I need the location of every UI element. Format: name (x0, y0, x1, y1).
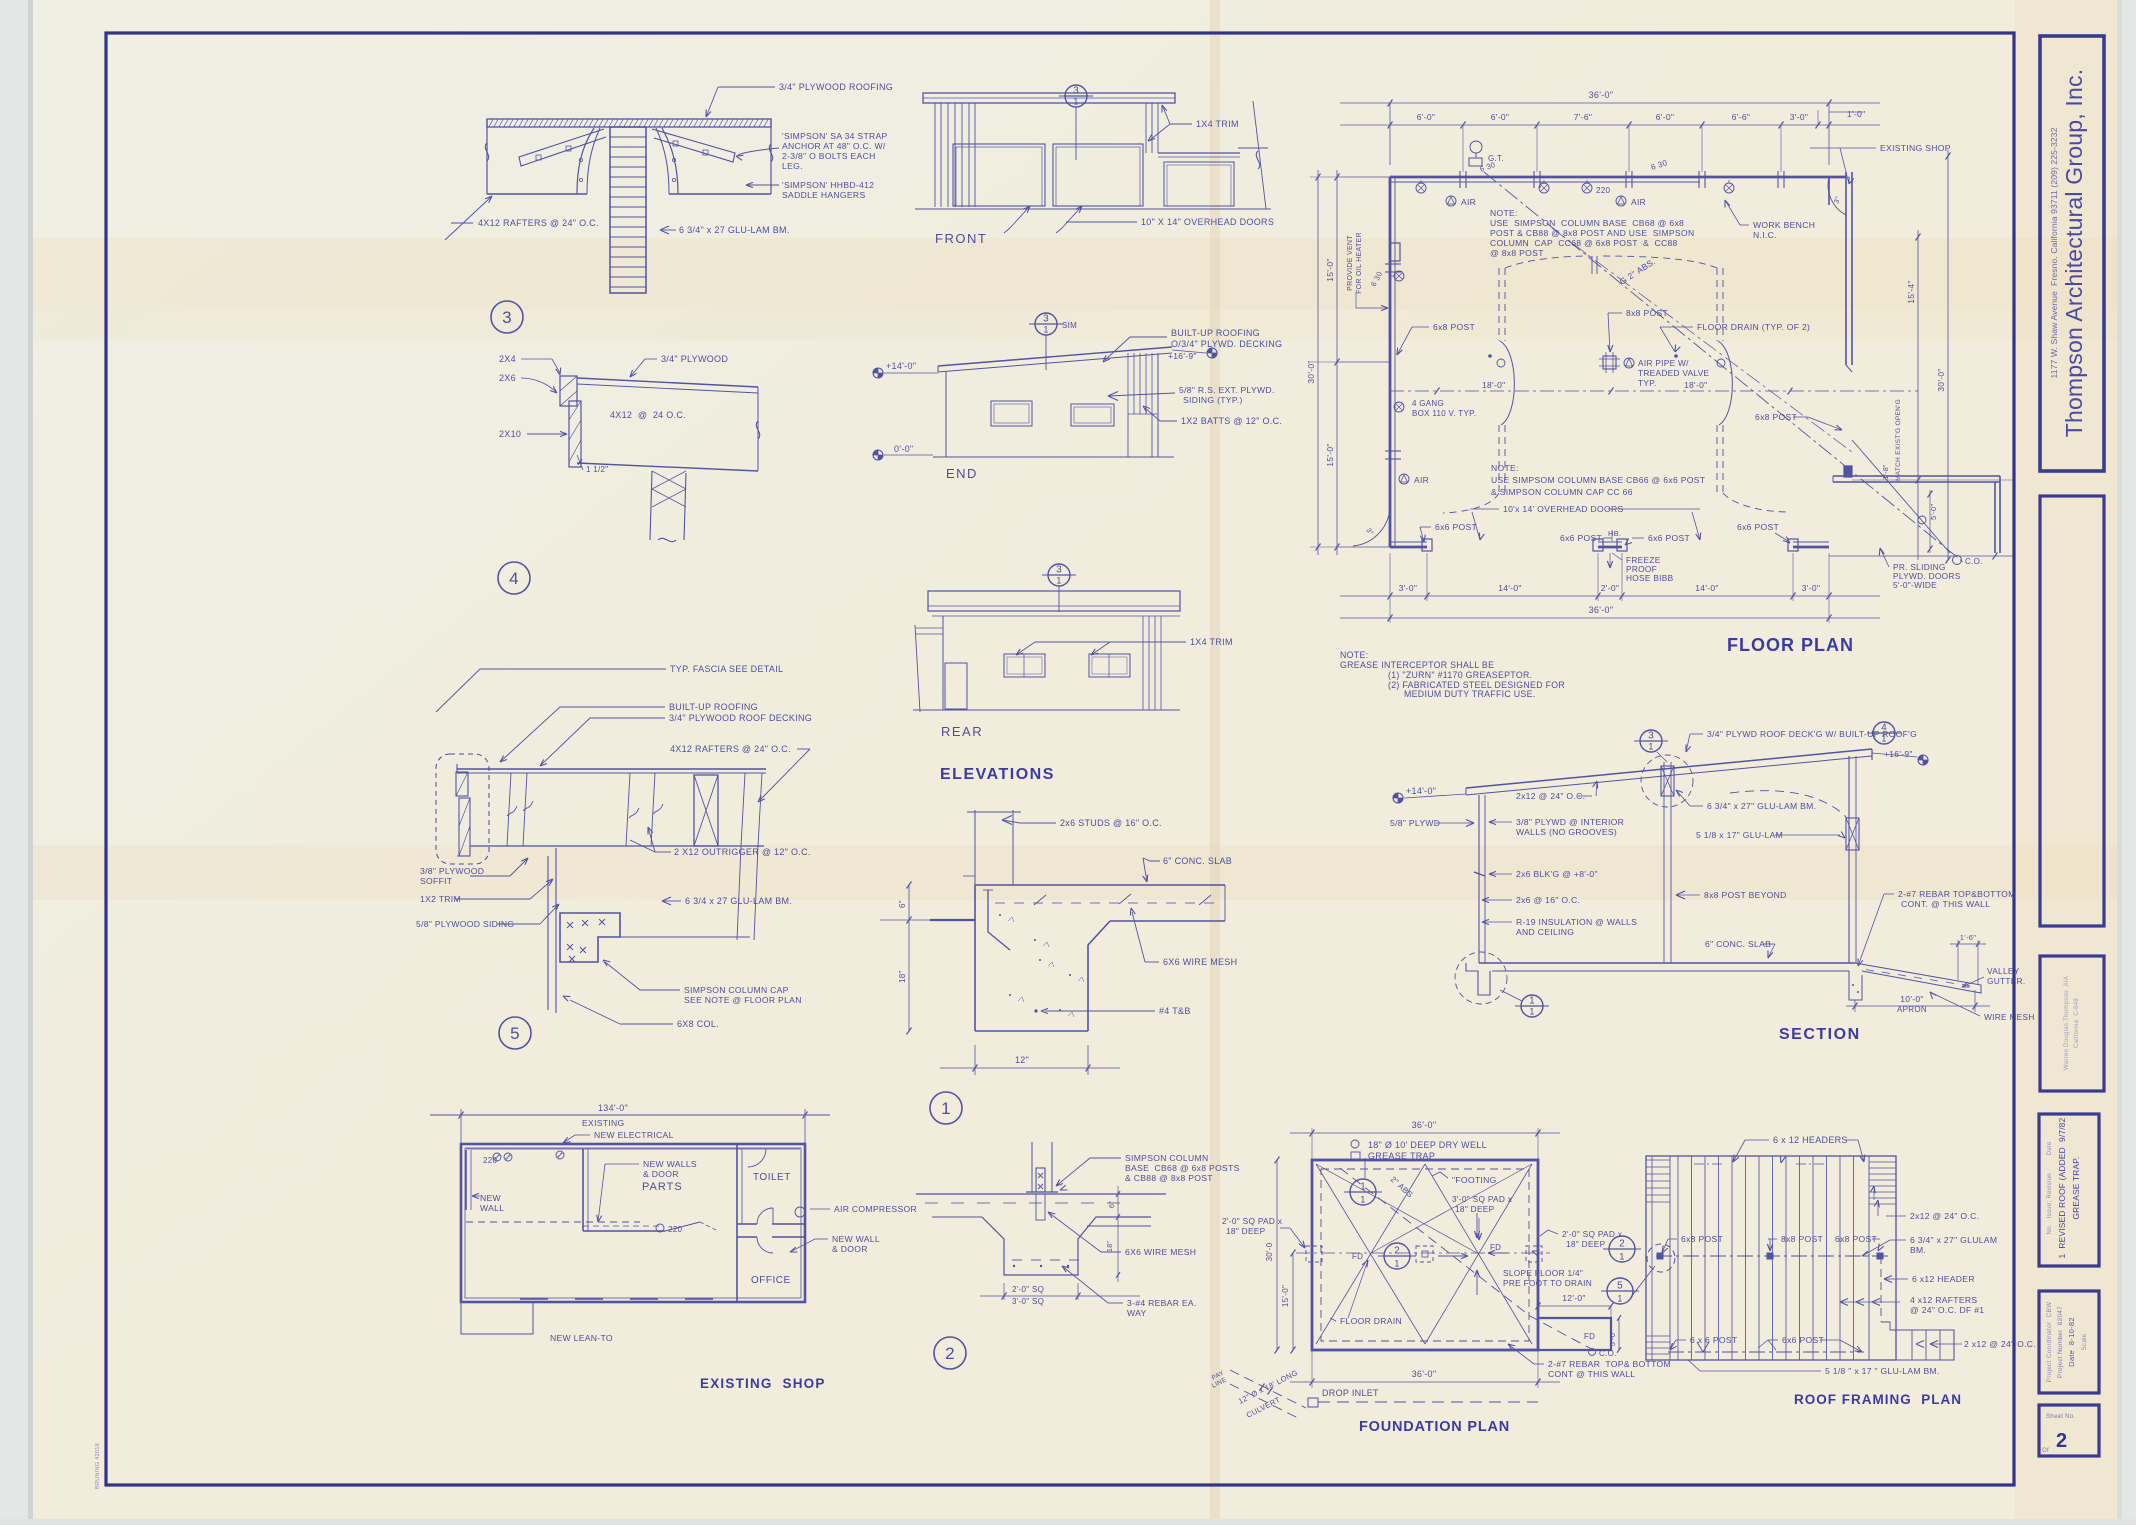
svg-text:6X6 WIRE MESH: 6X6 WIRE MESH (1125, 1247, 1196, 1257)
svg-text:6x6 POST: 6x6 POST (1648, 533, 1690, 543)
svg-text:1: 1 (1529, 996, 1535, 1007)
svg-text:6'-0": 6'-0" (1656, 112, 1674, 122)
svg-text:1: 1 (1056, 576, 1061, 586)
svg-text:HB.: HB. (1608, 529, 1621, 538)
svg-text:134'-0": 134'-0" (598, 1103, 628, 1113)
svg-text:18'-0": 18'-0" (1482, 380, 1505, 390)
svg-text:1: 1 (941, 1099, 951, 1118)
svg-text:6'-6": 6'-6" (1732, 112, 1750, 122)
svg-text:(1) "ZURN" #1170 GREASEPTOR.: (1) "ZURN" #1170 GREASEPTOR. (1388, 670, 1532, 680)
svg-text:FD: FD (1490, 1243, 1501, 1252)
svg-text:DROP INLET: DROP INLET (1322, 1388, 1379, 1398)
svg-text:BASE CB68 @ 6x8 POSTS: BASE CB68 @ 6x8 POSTS (1125, 1163, 1240, 1173)
svg-text:SLOPE FLOOR 1/4": SLOPE FLOOR 1/4" (1503, 1268, 1583, 1278)
svg-text:6 3/4 x 27 GLU-LAM BM.: 6 3/4 x 27 GLU-LAM BM. (685, 896, 792, 906)
svg-text:6x8 POST: 6x8 POST (1681, 1234, 1723, 1244)
svg-text:NEW: NEW (480, 1193, 502, 1203)
svg-text:+14'-0": +14'-0" (1406, 786, 1436, 796)
svg-text:0'-0": 0'-0" (894, 444, 913, 454)
svg-text:14'-0": 14'-0" (1498, 583, 1521, 593)
svg-text:FD: FD (1584, 1332, 1595, 1341)
svg-text:1177 W. Shaw Avenue Fresno. C: 1177 W. Shaw Avenue Fresno. California 9… (2049, 127, 2059, 378)
svg-text:5: 5 (510, 1024, 520, 1043)
svg-text:6": 6" (1109, 1201, 1116, 1208)
svg-text:C.O.: C.O. (1599, 1349, 1617, 1358)
svg-text:SIMPSON COLUMN: SIMPSON COLUMN (1125, 1153, 1208, 1163)
svg-text:6" CONC. SLAB: 6" CONC. SLAB (1163, 856, 1232, 866)
svg-text:3: 3 (1043, 314, 1049, 325)
svg-text:18": 18" (898, 970, 907, 983)
svg-text:2-#7 REBAR TOP&BOTTOM: 2-#7 REBAR TOP&BOTTOM (1898, 889, 2016, 899)
svg-text:TYP. FASCIA SEE DETAIL: TYP. FASCIA SEE DETAIL (670, 664, 783, 674)
svg-text:BUILT-UP ROOFING: BUILT-UP ROOFING (1171, 328, 1260, 338)
svg-text:FOR OIL HEATER: FOR OIL HEATER (1356, 232, 1363, 294)
svg-text:6x8 POST: 6x8 POST (1835, 1234, 1877, 1244)
svg-text:"FOOTING: "FOOTING (1452, 1175, 1497, 1185)
svg-text:2: 2 (1394, 1246, 1400, 1257)
svg-text:3/4" PLYWOOD ROOF DECKING: 3/4" PLYWOOD ROOF DECKING (669, 713, 812, 723)
svg-text:FOUNDATION PLAN: FOUNDATION PLAN (1359, 1419, 1510, 1435)
svg-text:5 1/8 x 17" GLU-LAM: 5 1/8 x 17" GLU-LAM (1696, 830, 1783, 840)
svg-text:@ 24" O.C. DF #1: @ 24" O.C. DF #1 (1910, 1305, 1984, 1315)
svg-text:4X12 @ 24 O.C.: 4X12 @ 24 O.C. (610, 410, 686, 420)
svg-text:12'-0": 12'-0" (1562, 1293, 1585, 1303)
svg-text:AND CEILING: AND CEILING (1516, 927, 1574, 937)
svg-text:3: 3 (1073, 86, 1079, 97)
svg-text:'SIMPSON' HHBD-412: 'SIMPSON' HHBD-412 (782, 180, 874, 190)
svg-text:12": 12" (1015, 1055, 1029, 1065)
svg-text:TOILET: TOILET (753, 1172, 791, 1183)
svg-text:3/8" PLYWD @ INTERIOR: 3/8" PLYWD @ INTERIOR (1516, 817, 1624, 827)
svg-text:MATCH EXIST'G OPEN'G: MATCH EXIST'G OPEN'G (1895, 399, 1902, 481)
svg-text:+14'-0": +14'-0" (886, 361, 916, 371)
svg-text:N.I.C.: N.I.C. (1753, 230, 1777, 240)
svg-text:4 GANG: 4 GANG (1412, 399, 1444, 408)
svg-text:3'-0" SQ: 3'-0" SQ (1012, 1297, 1044, 1306)
svg-text:REAR: REAR (941, 724, 983, 739)
svg-text:WALL: WALL (480, 1203, 504, 1213)
svg-text:1: 1 (1617, 1294, 1622, 1304)
svg-text:BUILT-UP ROOFING: BUILT-UP ROOFING (669, 702, 758, 712)
svg-text:2: 2 (1619, 1239, 1625, 1250)
svg-text:AIR PIPE W/: AIR PIPE W/ (1638, 358, 1689, 368)
svg-text:36'-0": 36'-0" (1412, 1120, 1437, 1130)
svg-text:3'-0": 3'-0" (1399, 583, 1417, 593)
svg-text:5'-0": 5'-0" (1608, 1330, 1617, 1346)
svg-text:8x8 POST BEYOND: 8x8 POST BEYOND (1704, 890, 1787, 900)
svg-text:30'-0: 30'-0 (1265, 1242, 1274, 1261)
svg-text:ROOF FRAMING PLAN: ROOF FRAMING PLAN (1794, 1392, 1962, 1407)
svg-text:#4 T&B: #4 T&B (1159, 1006, 1191, 1016)
svg-text:10'x 14' OVERHEAD DOORS: 10'x 14' OVERHEAD DOORS (1503, 504, 1624, 514)
svg-text:APRON: APRON (1897, 1005, 1927, 1014)
svg-text:18": 18" (1107, 1241, 1114, 1252)
svg-text:15'-0": 15'-0" (1325, 258, 1335, 281)
svg-text:2'-0": 2'-0" (1601, 583, 1619, 593)
svg-text:5'-0"-WIDE: 5'-0"-WIDE (1893, 580, 1937, 590)
svg-text:GREASE TRAP.: GREASE TRAP. (2071, 1156, 2081, 1219)
svg-text:C.O.: C.O. (1965, 557, 1983, 566)
svg-text:4X12 RAFTERS @ 24" O.C.: 4X12 RAFTERS @ 24" O.C. (670, 744, 791, 754)
svg-text:6'-0": 6'-0" (1417, 112, 1435, 122)
svg-text:OFFICE: OFFICE (751, 1275, 791, 1286)
svg-text:USE SIMPSON COLUMN BASE CB6: USE SIMPSON COLUMN BASE CB68 @ 6x8 (1490, 218, 1684, 228)
svg-text:10" X 14" OVERHEAD DOORS: 10" X 14" OVERHEAD DOORS (1141, 217, 1274, 227)
svg-text:GUTTER.: GUTTER. (1987, 976, 2026, 986)
svg-text:WIRE MESH: WIRE MESH (1984, 1012, 2035, 1022)
svg-text:FLOOR DRAIN (TYP. OF 2): FLOOR DRAIN (TYP. OF 2) (1697, 322, 1810, 332)
svg-text:2x6 BLK'G @ +8'-0": 2x6 BLK'G @ +8'-0" (1516, 869, 1598, 879)
svg-text:& SIMPSON COLUMN CAP CC 66: & SIMPSON COLUMN CAP CC 66 (1491, 487, 1633, 497)
svg-text:SOFFIT: SOFFIT (420, 876, 453, 886)
svg-text:3-#4 REBAR EA.: 3-#4 REBAR EA. (1127, 1298, 1197, 1308)
svg-text:POST & CB88 @ 8x8 POST AND USE: POST & CB88 @ 8x8 POST AND USE SIMPSON (1490, 228, 1694, 238)
svg-text:PROVIDE VENT: PROVIDE VENT (1347, 235, 1354, 291)
svg-text:SECTION: SECTION (1779, 1026, 1861, 1043)
svg-text:6x6 POST: 6x6 POST (1560, 533, 1602, 543)
svg-text:TYP.: TYP. (1638, 378, 1657, 388)
svg-text:1: 1 (1360, 1195, 1365, 1205)
svg-text:WALLS (NO GROOVES): WALLS (NO GROOVES) (1516, 827, 1617, 837)
svg-text:1: 1 (1648, 742, 1653, 752)
svg-text:SIDING (TYP.): SIDING (TYP.) (1183, 395, 1243, 405)
svg-text:Warren Douglas Thompson AIA: Warren Douglas Thompson AIA (2064, 976, 2070, 1070)
svg-text:FD: FD (1352, 1252, 1363, 1261)
svg-text:15'-0": 15'-0" (1325, 443, 1335, 466)
svg-text:3/4" PLYWD ROOF DECK'G W/ BUIL: 3/4" PLYWD ROOF DECK'G W/ BUILT-UP ROOF'… (1707, 729, 1917, 739)
svg-text:SIMPSON COLUMN CAP: SIMPSON COLUMN CAP (684, 985, 789, 995)
svg-text:BM.: BM. (1910, 1245, 1926, 1255)
svg-text:CONT. @ THIS WALL: CONT. @ THIS WALL (1901, 899, 1990, 909)
svg-text:2x6 @ 16" O.C.: 2x6 @ 16" O.C. (1516, 895, 1580, 905)
svg-text:2x12 @ 24" O.C.: 2x12 @ 24" O.C. (1516, 791, 1585, 801)
svg-text:2x6 STUDS @ 16" O.C.: 2x6 STUDS @ 16" O.C. (1060, 818, 1162, 828)
svg-text:1X2 BATTS @ 12" O.C.: 1X2 BATTS @ 12" O.C. (1181, 416, 1282, 426)
svg-text:+16'-9": +16'-9" (1168, 351, 1197, 361)
svg-text:& DOOR: & DOOR (832, 1244, 868, 1254)
svg-text:R-19 INSULATION @ WALLS: R-19 INSULATION @ WALLS (1516, 917, 1637, 927)
svg-text:NOTE:: NOTE: (1490, 208, 1518, 218)
svg-text:6 x12 HEADER: 6 x12 HEADER (1912, 1274, 1975, 1284)
svg-text:NEW WALLS: NEW WALLS (643, 1159, 697, 1169)
svg-text:4X12 RAFTERS @ 24" O.C.: 4X12 RAFTERS @ 24" O.C. (478, 218, 599, 228)
svg-text:AIR: AIR (1461, 197, 1476, 207)
svg-text:SADDLE HANGERS: SADDLE HANGERS (782, 190, 865, 200)
svg-text:1'-0": 1'-0" (1847, 109, 1865, 119)
svg-text:Of: Of (2042, 1448, 2049, 1454)
svg-text:& CB88 @ 8x8 POST: & CB88 @ 8x8 POST (1125, 1173, 1213, 1183)
svg-text:MEDIUM DUTY TRAFFIC USE.: MEDIUM DUTY TRAFFIC USE. (1404, 689, 1536, 699)
svg-text:6 3/4" x 27" GLULAM: 6 3/4" x 27" GLULAM (1910, 1235, 1997, 1245)
svg-text:5 1/8 " x 17 " GLU-LAM BM.: 5 1/8 " x 17 " GLU-LAM BM. (1825, 1366, 1940, 1376)
svg-text:NEW ELECTRICAL: NEW ELECTRICAL (594, 1130, 674, 1140)
svg-text:36'-0": 36'-0" (1589, 90, 1614, 100)
svg-text:30'-0": 30'-0" (1936, 368, 1946, 391)
svg-text:1 REVISED ROOF (ADDED 9/7/82: 1 REVISED ROOF (ADDED 9/7/82 (2057, 1117, 2067, 1258)
svg-text:PARTS: PARTS (642, 1181, 683, 1193)
svg-text:3: 3 (1648, 731, 1654, 742)
svg-text:EXISTING SHOP: EXISTING SHOP (700, 1376, 826, 1391)
svg-text:BRUNING 42018: BRUNING 42018 (95, 1443, 101, 1489)
svg-text:BOX 110 V. TYP.: BOX 110 V. TYP. (1412, 409, 1476, 418)
svg-text:FRONT: FRONT (935, 231, 987, 246)
svg-text:1: 1 (1619, 1252, 1624, 1262)
svg-text:3'-0": 3'-0" (1802, 583, 1820, 593)
svg-text:2: 2 (945, 1344, 955, 1363)
svg-text:Project Coordinator CBW: Project Coordinator CBW (2046, 1301, 2053, 1382)
svg-text:ANCHOR AT 48" O.C. W/: ANCHOR AT 48" O.C. W/ (782, 141, 886, 151)
svg-text:2: 2 (2056, 1430, 2067, 1452)
svg-text:FLOOR PLAN: FLOOR PLAN (1727, 635, 1854, 655)
svg-text:7'-6": 7'-6" (1574, 112, 1592, 122)
svg-text:6x8 POST: 6x8 POST (1433, 322, 1475, 332)
svg-text:2 X12 OUTRIGGER @ 12" O.C.: 2 X12 OUTRIGGER @ 12" O.C. (674, 847, 811, 857)
svg-text:30'-0": 30'-0" (1306, 360, 1316, 383)
svg-text:6 x 6 POST: 6 x 6 POST (1690, 1335, 1738, 1345)
svg-text:1: 1 (1043, 325, 1048, 335)
svg-text:15'-4": 15'-4" (1906, 280, 1916, 303)
svg-text:PRE FOOT TO DRAIN: PRE FOOT TO DRAIN (1503, 1278, 1592, 1288)
svg-text:GREASE INTERCEPTOR SHALL BE: GREASE INTERCEPTOR SHALL BE (1340, 660, 1494, 670)
svg-text:NEW WALL: NEW WALL (832, 1234, 880, 1244)
svg-text:+16'-9": +16'-9" (1884, 749, 1913, 759)
svg-text:6'-0": 6'-0" (1491, 112, 1509, 122)
svg-text:1: 1 (1394, 1259, 1399, 1269)
svg-text:1'-6": 1'-6" (1960, 933, 1976, 942)
svg-text:No. Issue; Revision: No. Issue; Revision Date (2047, 1141, 2053, 1234)
svg-text:VALLEY: VALLEY (1987, 966, 2020, 976)
svg-text:220: 220 (483, 1156, 497, 1165)
svg-text:COLUMN CAP CC68 @ 6x8 POST: COLUMN CAP CC68 @ 6x8 POST & CC88 (1490, 238, 1678, 248)
svg-text:2'-0" SQ: 2'-0" SQ (1012, 1285, 1044, 1294)
svg-text:NOTE:: NOTE: (1340, 650, 1368, 660)
svg-text:Scale: Scale (2081, 1333, 2088, 1350)
svg-text:NOTE:: NOTE: (1491, 463, 1519, 473)
svg-text:18" Ø 10' DEEP DRY WELL: 18" Ø 10' DEEP DRY WELL (1368, 1140, 1487, 1150)
svg-text:2'-0" SQ PAD x: 2'-0" SQ PAD x (1562, 1229, 1623, 1239)
svg-text:10'-0": 10'-0" (1900, 994, 1923, 1004)
svg-text:6": 6" (898, 900, 907, 908)
svg-text:Sheet No.: Sheet No. (2046, 1414, 2075, 1420)
svg-text:GREASE TRAP: GREASE TRAP (1368, 1151, 1435, 1161)
svg-text:3'-0": 3'-0" (1790, 112, 1808, 122)
svg-text:2x12 @ 24" O.C.: 2x12 @ 24" O.C. (1910, 1211, 1979, 1221)
svg-text:ELEVATIONS: ELEVATIONS (940, 766, 1055, 783)
svg-text:Thompson Architectural Group,: Thompson Architectural Group, Inc. (2061, 69, 2087, 438)
svg-text:1X4 TRIM: 1X4 TRIM (1196, 119, 1239, 129)
svg-text:6x8 POST: 6x8 POST (1755, 412, 1797, 422)
svg-text:1 1/2": 1 1/2" (586, 465, 608, 474)
svg-text:220: 220 (668, 1225, 682, 1234)
svg-text:@ 8x8 POST: @ 8x8 POST (1490, 248, 1544, 258)
svg-text:NEW LEAN-TO: NEW LEAN-TO (550, 1333, 613, 1343)
svg-text:4 x12 RAFTERS: 4 x12 RAFTERS (1910, 1295, 1977, 1305)
svg-text:18" DEEP: 18" DEEP (1455, 1204, 1495, 1214)
svg-text:3: 3 (1056, 565, 1062, 576)
svg-text:2X4: 2X4 (499, 354, 516, 364)
svg-text:O/3/4" PLYWD. DECKING: O/3/4" PLYWD. DECKING (1171, 339, 1282, 349)
svg-text:EXISTING SHOP: EXISTING SHOP (1880, 143, 1951, 153)
svg-text:California C-648: California C-648 (2074, 998, 2080, 1048)
svg-text:1: 1 (1529, 1007, 1534, 1017)
svg-text:SIM: SIM (1062, 321, 1077, 330)
svg-text:3: 3 (502, 308, 512, 327)
svg-text:'SIMPSON' SA 34 STRAP: 'SIMPSON' SA 34 STRAP (782, 131, 888, 141)
svg-text:FLOOR DRAIN: FLOOR DRAIN (1340, 1316, 1402, 1326)
svg-text:6x6 POST: 6x6 POST (1782, 1335, 1824, 1345)
svg-text:EXISTING: EXISTING (582, 1118, 625, 1128)
svg-text:4: 4 (509, 569, 519, 588)
svg-text:WORK BENCH: WORK BENCH (1753, 220, 1815, 230)
svg-text:HOSE BIBB: HOSE BIBB (1626, 573, 1674, 583)
svg-text:3/8" PLYWOOD: 3/8" PLYWOOD (420, 866, 484, 876)
svg-text:USE SIMPSOM COLUMN BASE CB66 @: USE SIMPSOM COLUMN BASE CB66 @ 6x6 POST (1491, 475, 1706, 485)
svg-text:6" CONC. SLAB: 6" CONC. SLAB (1705, 939, 1771, 949)
svg-text:5: 5 (1617, 1281, 1623, 1292)
svg-text:5/8" R.S. EXT. PLYWD.: 5/8" R.S. EXT. PLYWD. (1179, 385, 1275, 395)
svg-text:SEE NOTE @ FLOOR PLAN: SEE NOTE @ FLOOR PLAN (684, 995, 802, 1005)
svg-text:36'-0": 36'-0" (1412, 1369, 1437, 1379)
svg-text:6 x 12 HEADERS: 6 x 12 HEADERS (1773, 1135, 1848, 1145)
svg-text:6x6 POST: 6x6 POST (1435, 522, 1477, 532)
svg-text:TREADED VALVE: TREADED VALVE (1638, 368, 1710, 378)
svg-text:1X4 TRIM: 1X4 TRIM (1190, 637, 1233, 647)
svg-text:2X10: 2X10 (499, 429, 521, 439)
svg-text:3/4" PLYWOOD: 3/4" PLYWOOD (661, 354, 728, 364)
svg-text:2X6: 2X6 (499, 373, 516, 383)
svg-text:6 3/4" x 27 GLU-LAM BM.: 6 3/4" x 27 GLU-LAM BM. (679, 225, 790, 235)
svg-text:15'-0": 15'-0" (1281, 1285, 1290, 1307)
svg-text:8x8 POST: 8x8 POST (1781, 1234, 1823, 1244)
svg-text:1: 1 (1360, 1182, 1366, 1193)
svg-text:6x6 POST: 6x6 POST (1737, 522, 1779, 532)
svg-text:220: 220 (1596, 186, 1610, 195)
svg-text:18" DEEP: 18" DEEP (1566, 1239, 1606, 1249)
svg-text:3/4" PLYWOOD ROOFING: 3/4" PLYWOOD ROOFING (779, 82, 893, 92)
svg-text:Date 8-10-82: Date 8-10-82 (2067, 1317, 2076, 1367)
svg-text:36'-0": 36'-0" (1589, 605, 1614, 615)
svg-text:6 3/4" x 27" GLU-LAM BM.: 6 3/4" x 27" GLU-LAM BM. (1707, 801, 1816, 811)
svg-text:2 x12 @ 24" O.C.: 2 x12 @ 24" O.C. (1964, 1339, 2036, 1349)
svg-text:END: END (946, 466, 978, 481)
svg-text:6X8 COL.: 6X8 COL. (677, 1019, 719, 1029)
svg-text:LEG.: LEG. (782, 161, 803, 171)
svg-text:5/8" PLYWD: 5/8" PLYWD (1390, 818, 1440, 828)
svg-text:3'-0" SQ PAD x: 3'-0" SQ PAD x (1452, 1194, 1513, 1204)
svg-text:WAY: WAY (1127, 1308, 1147, 1318)
svg-text:AIR: AIR (1414, 475, 1429, 485)
svg-text:1X2 TRIM: 1X2 TRIM (420, 894, 461, 904)
svg-text:CONT @ THIS WALL: CONT @ THIS WALL (1548, 1369, 1635, 1379)
svg-text:AIR: AIR (1631, 197, 1646, 207)
svg-text:8x8 POST: 8x8 POST (1626, 308, 1668, 318)
svg-text:18'-0": 18'-0" (1684, 380, 1707, 390)
svg-text:Project Number 82047: Project Number 82047 (2057, 1306, 2064, 1378)
svg-text:AIR COMPRESSOR: AIR COMPRESSOR (834, 1204, 917, 1214)
svg-text:2-3/8" O BOLTS EACH: 2-3/8" O BOLTS EACH (782, 151, 876, 161)
svg-text:6X6 WIRE MESH: 6X6 WIRE MESH (1163, 957, 1237, 967)
svg-text:14'-0": 14'-0" (1695, 583, 1718, 593)
svg-text:18" DEEP: 18" DEEP (1226, 1226, 1266, 1236)
svg-text:2'-0" SQ PAD x: 2'-0" SQ PAD x (1222, 1216, 1283, 1226)
svg-text:& DOOR: & DOOR (643, 1169, 679, 1179)
